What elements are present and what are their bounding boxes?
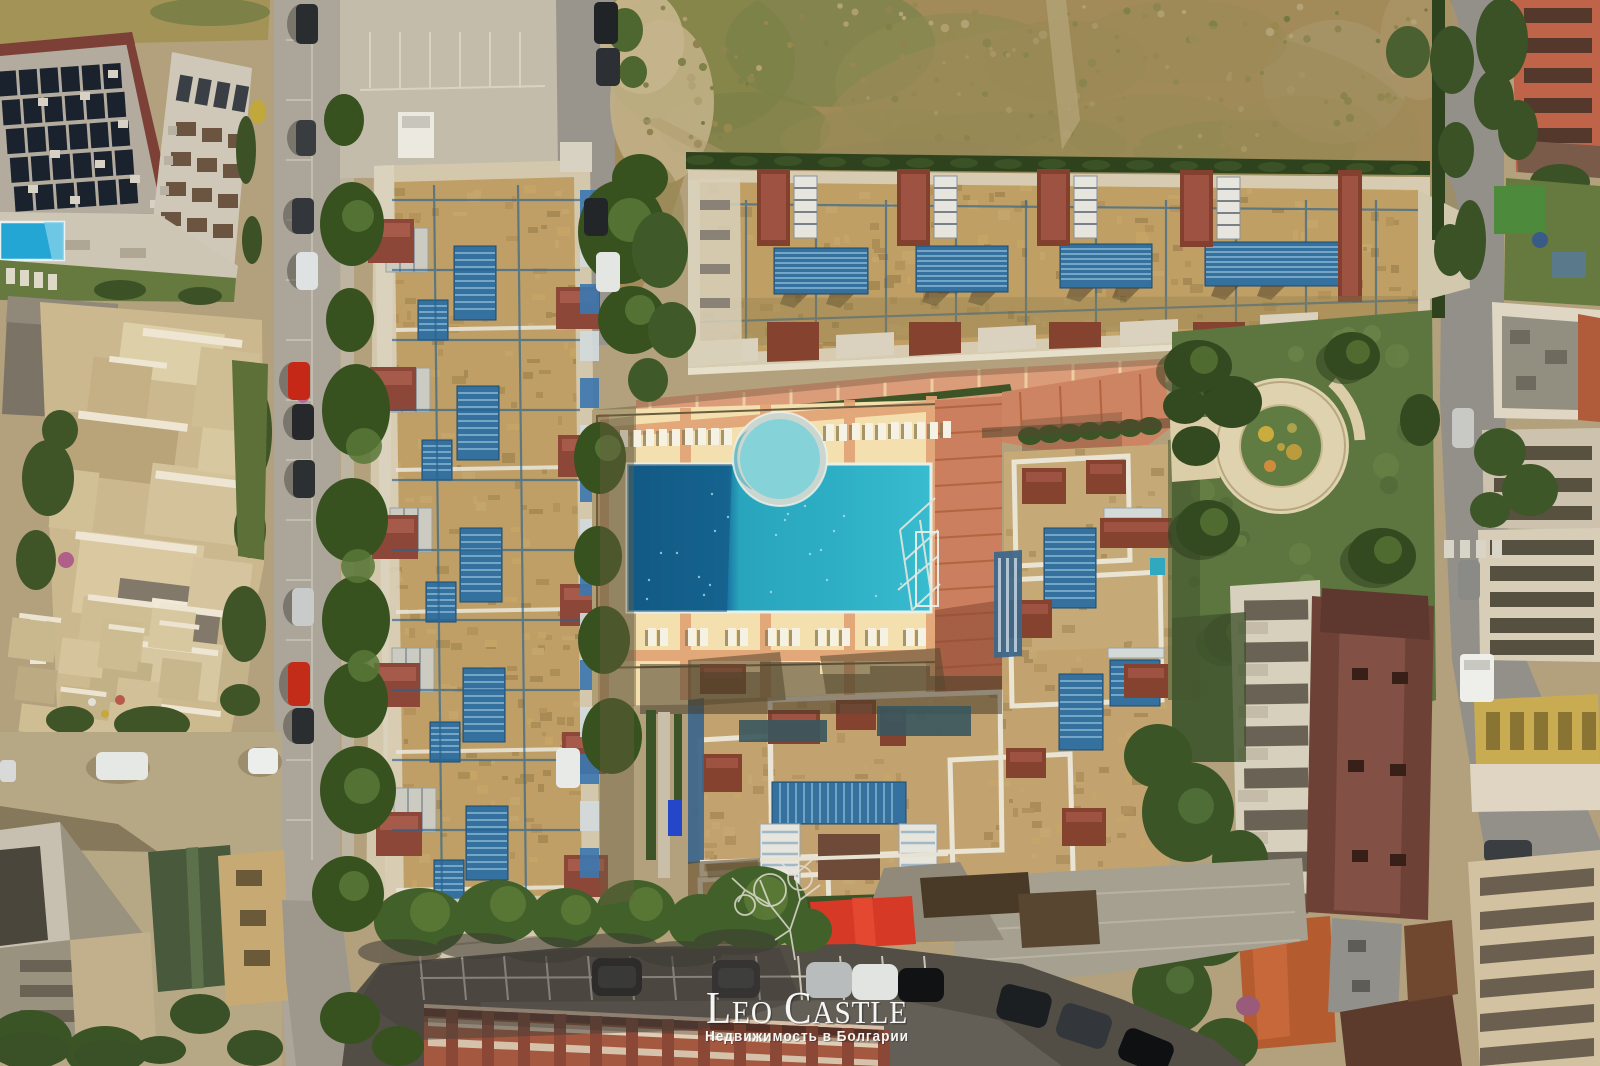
svg-text:Недвижимость в Болгарии: Недвижимость в Болгарии bbox=[705, 1029, 909, 1045]
svg-text:Leo Castle: Leo Castle bbox=[706, 983, 908, 1033]
